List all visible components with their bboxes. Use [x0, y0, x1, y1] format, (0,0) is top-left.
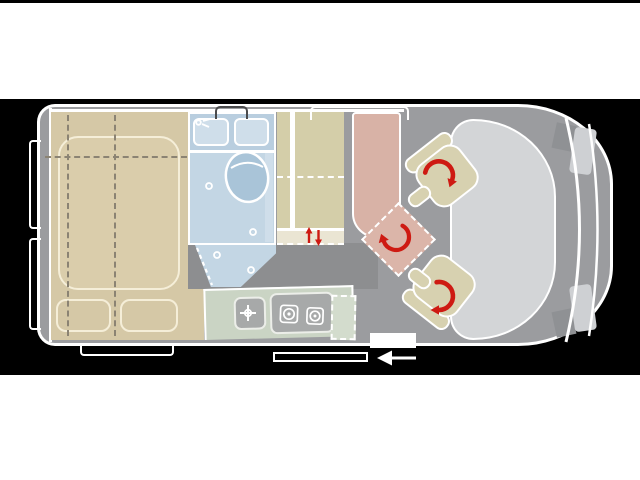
- bathroom-sink: [193, 118, 229, 146]
- wardrobe-base-strip: [277, 231, 344, 245]
- wardrobe-column: [295, 112, 344, 228]
- pillow: [56, 299, 111, 332]
- bathroom-cabinet: [234, 118, 269, 146]
- wardrobe-cabinet: [277, 112, 344, 245]
- mattress: [58, 136, 180, 290]
- wardrobe-shelf-line: [277, 176, 344, 178]
- wardrobe-column: [277, 112, 290, 228]
- bathroom-divider-line: [190, 150, 274, 153]
- window-bracket-icon: [80, 346, 174, 356]
- rear-door-bracket-icon: [29, 238, 41, 330]
- entry-step: [370, 333, 416, 348]
- bathroom-door-strip: [265, 153, 273, 242]
- kitchen-extension-dashed: [331, 295, 357, 340]
- bed-fold-line: [67, 115, 69, 336]
- bathroom: [188, 112, 276, 245]
- window-bracket-icon: [310, 106, 409, 120]
- bed-fold-line: [114, 115, 116, 336]
- door-outline-icon: [273, 352, 368, 362]
- floorplan-canvas: [0, 0, 640, 480]
- window-bracket-icon: [215, 106, 248, 119]
- pillow: [120, 299, 178, 332]
- stove-unit: [269, 292, 334, 335]
- rear-door-bracket-icon: [29, 140, 41, 229]
- kitchen-sink-unit: [234, 296, 267, 330]
- top-border-line: [0, 0, 640, 3]
